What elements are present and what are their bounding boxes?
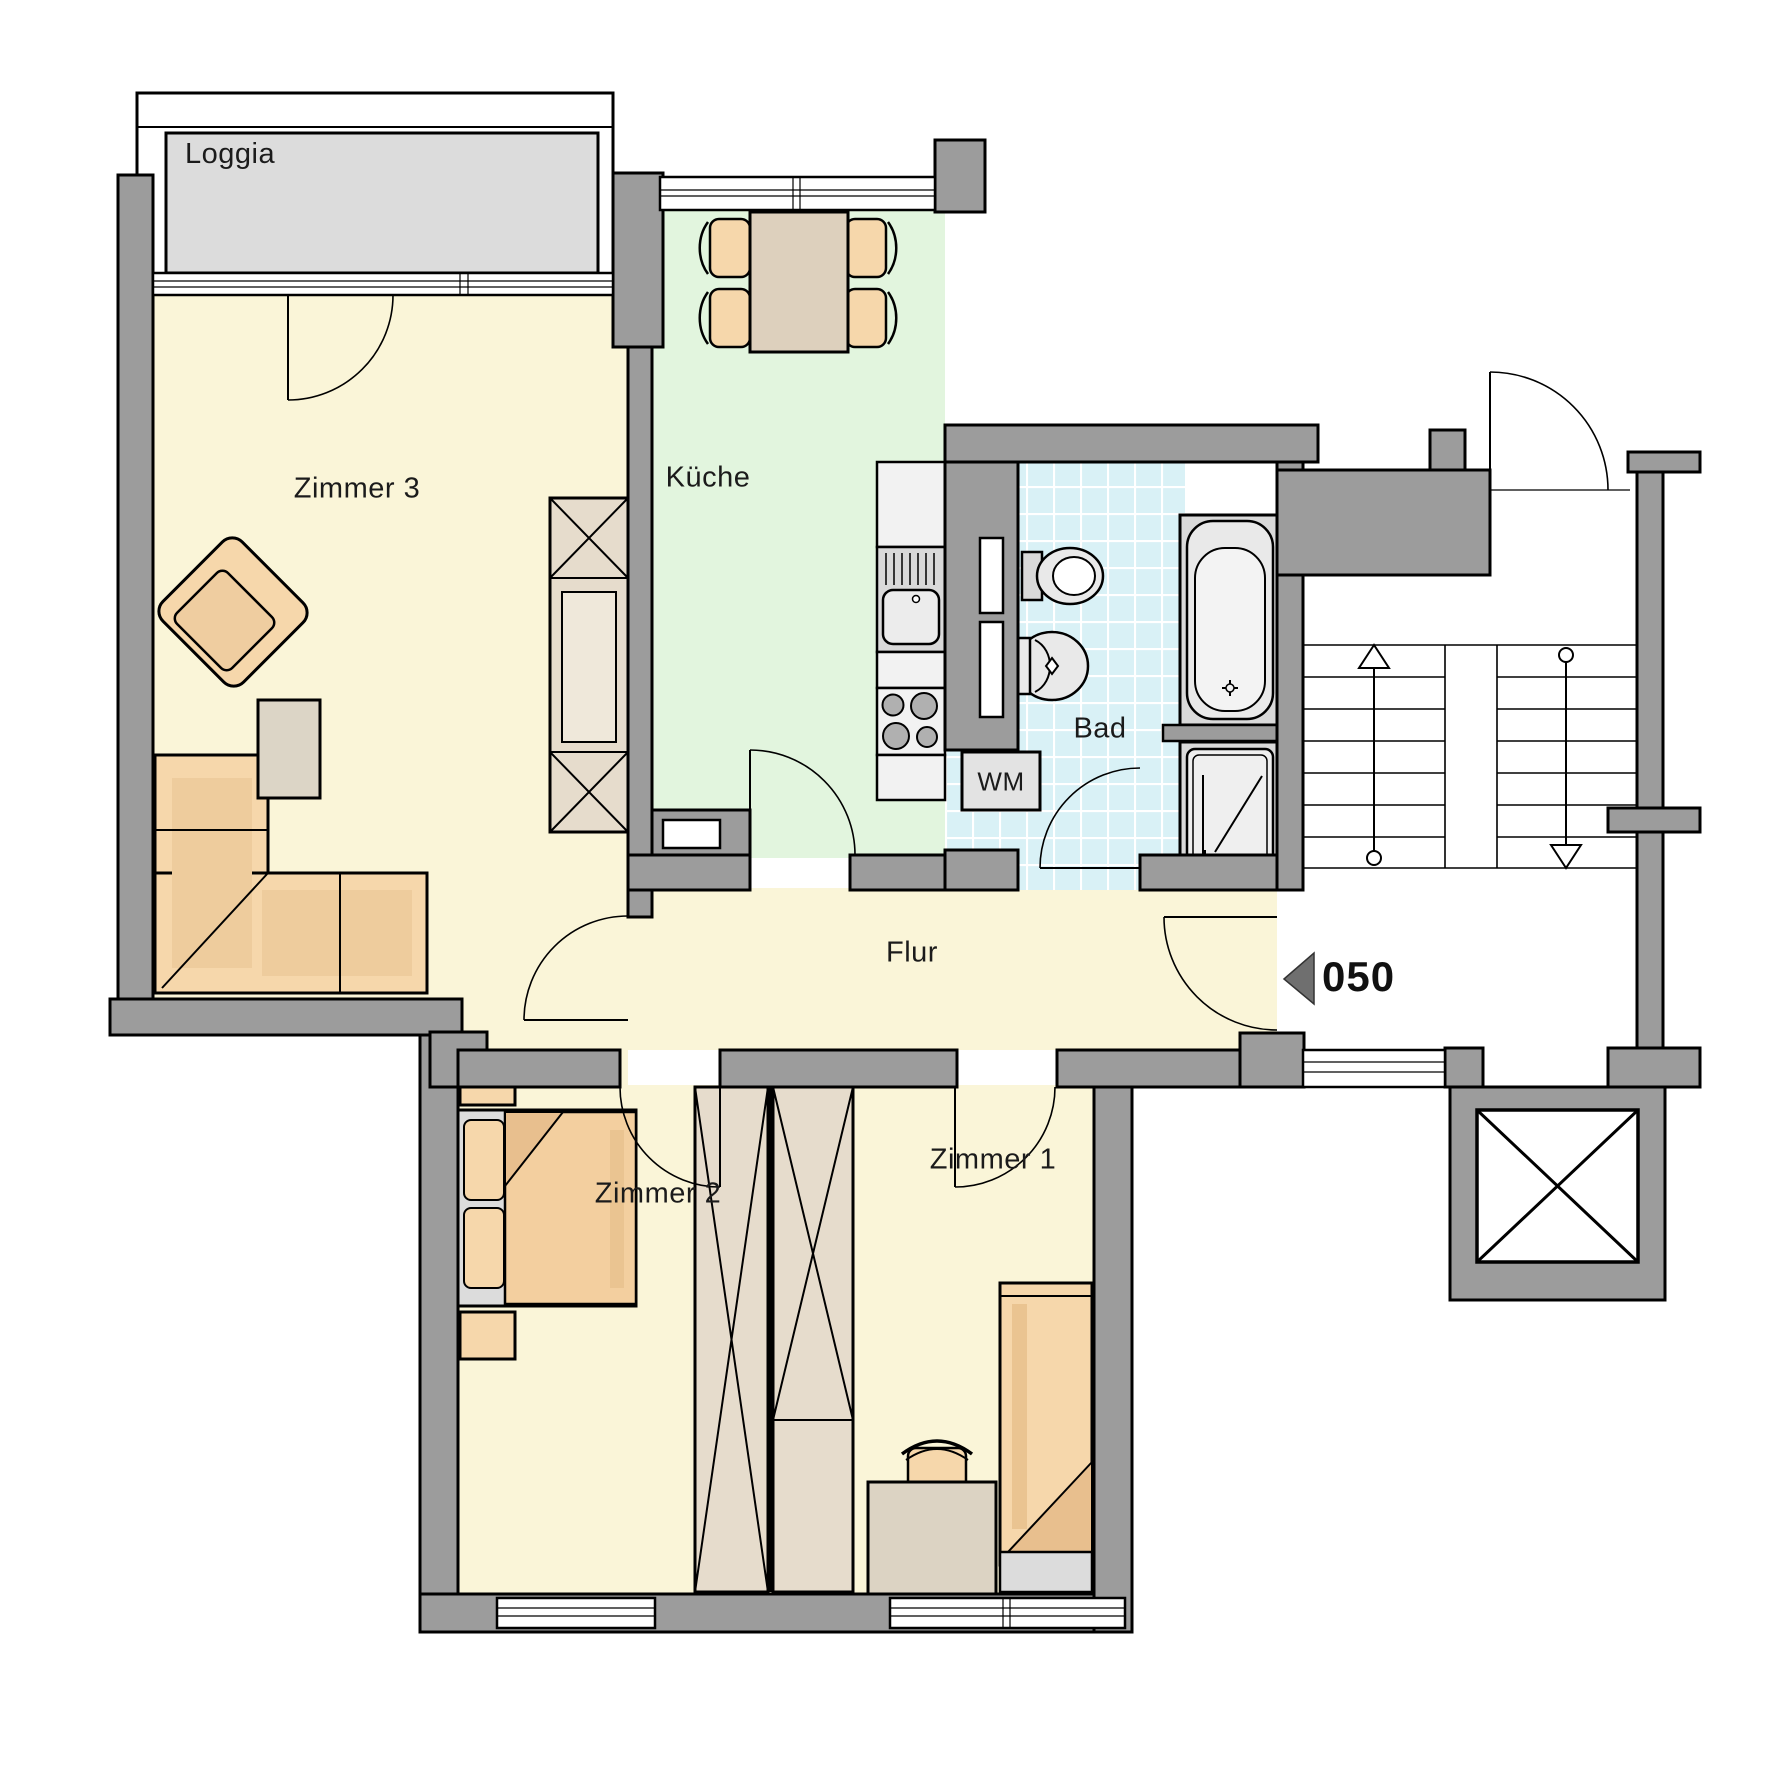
kitchen-sink-unit [877, 547, 945, 652]
wall-stairwell-top [1277, 470, 1490, 575]
shaft-niche-2 [980, 622, 1003, 717]
wall-kitchen-left-upper [613, 173, 663, 347]
zimmer1-window [890, 1598, 1125, 1628]
loggia-window-band [153, 273, 613, 295]
bath-partition [1163, 725, 1283, 741]
bathtub [1180, 515, 1280, 725]
wardrobes [695, 1087, 853, 1592]
wall-right-flange-bottom [1608, 1048, 1700, 1087]
unit-number-label: 050 [1322, 953, 1395, 1001]
loggia [137, 93, 613, 280]
kitchen-stove [877, 688, 945, 755]
hall-niche [663, 820, 720, 848]
wall-entry-stub-top [1430, 430, 1465, 470]
elevator [1450, 1087, 1665, 1300]
cupboard [550, 498, 628, 832]
wall-right-flange-mid [1608, 808, 1700, 832]
loggia-label: Loggia [185, 138, 275, 171]
desk [868, 1482, 996, 1594]
wall-kitchen-bottom-right [850, 855, 945, 890]
wall-stairwell-right-lower [1637, 832, 1663, 1048]
stair-steps [1303, 645, 1637, 868]
wall-entry-flange [1240, 1033, 1304, 1087]
wall-zimmer1-right [1094, 1050, 1132, 1632]
wall-zimmer2-left [420, 1035, 458, 1632]
wm-label: WM [977, 767, 1024, 798]
stairwell-window [1303, 1050, 1445, 1087]
kitchen-counter-end [877, 755, 945, 800]
staircase [1303, 645, 1637, 868]
coffee-table [258, 700, 320, 798]
wall-bedrooms-top-1 [458, 1050, 620, 1087]
wall-bedrooms-top-2 [720, 1050, 957, 1087]
kitchen-window [660, 177, 935, 210]
wall-zimmer3-bottom [110, 999, 462, 1035]
wall-left-outer [118, 175, 153, 1035]
entry-arrow-icon [1284, 953, 1314, 1004]
kitchen-counter [877, 462, 945, 800]
nightstand-bottom [460, 1312, 515, 1359]
single-bed [1000, 1283, 1092, 1592]
toilet [1022, 548, 1103, 604]
shaft-niche-1 [980, 538, 1003, 613]
wash-basin [1016, 632, 1088, 700]
wall-below-wm [945, 850, 1018, 890]
bad-label: Bad [1073, 713, 1126, 746]
kueche-label: Küche [666, 462, 751, 495]
wall-stairwell-right [1637, 472, 1663, 808]
wall-kitchen-bottom-left [628, 855, 750, 890]
wall-bad-bottom [1140, 855, 1297, 890]
wall-bad-top [945, 425, 1318, 462]
stairwell-door [1490, 372, 1630, 490]
wardrobe-zimmer2 [695, 1087, 768, 1592]
stair-down-arrow [1551, 648, 1581, 868]
zimmer1-label: Zimmer 1 [930, 1144, 1056, 1177]
wall-kitchen-window-stub-right [935, 140, 985, 212]
dining-table [750, 212, 848, 352]
kitchen-worktop-gap [877, 652, 945, 688]
zimmer2-window [497, 1598, 655, 1628]
flur-label: Flur [886, 937, 938, 970]
floor-plan-drawing [0, 0, 1771, 1771]
wardrobe-zimmer1 [773, 1087, 853, 1592]
wall-zimmer3-kueche [628, 347, 652, 917]
wall-right-flange-top [1628, 452, 1700, 472]
kitchen-cupboard [877, 462, 945, 547]
wall-landing-window-flange [1445, 1048, 1483, 1087]
zimmer3-label: Zimmer 3 [294, 473, 420, 506]
floor-plan: Loggia Zimmer 3 Küche Bad WM Flur Zimmer… [0, 0, 1771, 1771]
zimmer2-label: Zimmer 2 [595, 1178, 721, 1211]
stair-up-arrow [1359, 645, 1389, 865]
